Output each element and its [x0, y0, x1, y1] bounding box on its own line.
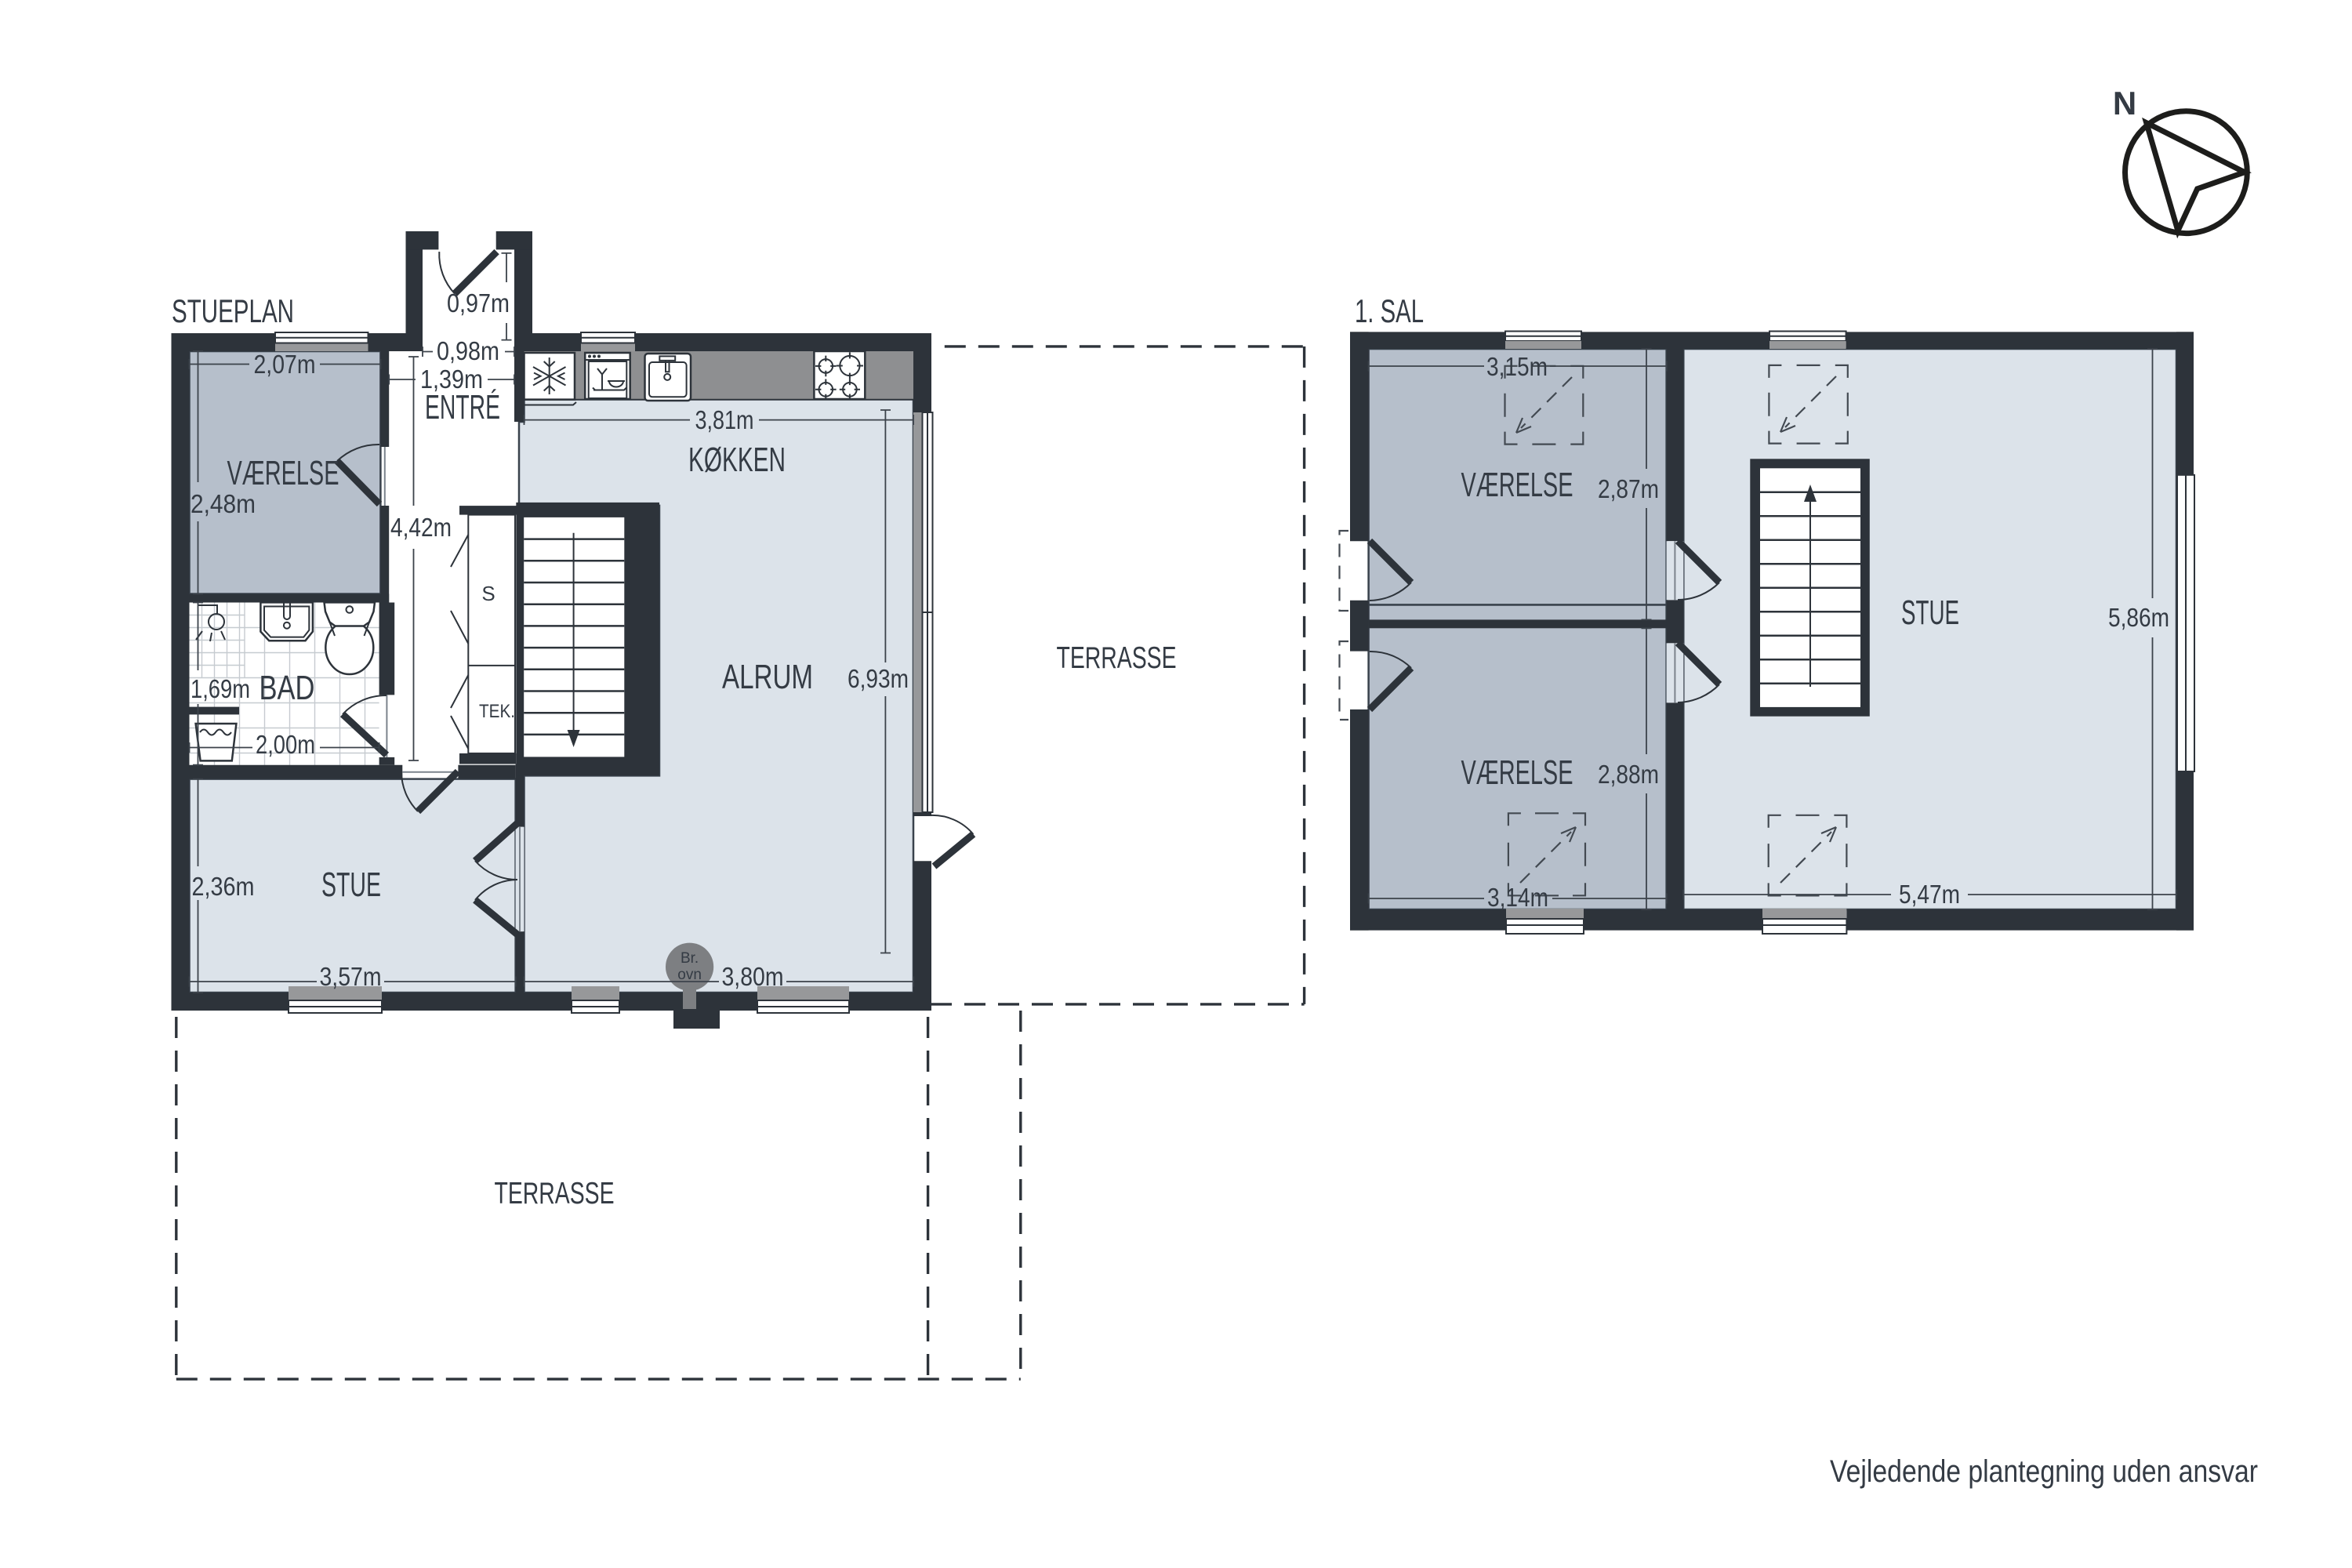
svg-text:TEK.: TEK.: [479, 701, 515, 722]
svg-text:2,88m: 2,88m: [1598, 760, 1659, 789]
svg-text:ALRUM: ALRUM: [722, 658, 813, 696]
svg-text:5,86m: 5,86m: [2108, 603, 2169, 632]
svg-text:Vejledende plantegning uden an: Vejledende plantegning uden ansvar: [1830, 1454, 2258, 1489]
svg-text:3,15m: 3,15m: [1486, 352, 1548, 381]
svg-text:3,80m: 3,80m: [722, 962, 784, 991]
svg-text:S: S: [481, 582, 495, 605]
svg-text:2,07m: 2,07m: [254, 350, 316, 379]
svg-text:VÆRELSE: VÆRELSE: [1461, 753, 1573, 792]
svg-text:ENTRÉ: ENTRÉ: [425, 388, 500, 426]
svg-text:TERRASSE: TERRASSE: [1057, 641, 1177, 675]
svg-text:BAD: BAD: [260, 669, 315, 707]
svg-text:N: N: [2113, 85, 2136, 122]
svg-text:0,97m: 0,97m: [447, 289, 510, 318]
svg-text:1,69m: 1,69m: [191, 674, 250, 703]
svg-text:VÆRELSE: VÆRELSE: [1461, 466, 1573, 504]
svg-text:STUE: STUE: [1901, 593, 1959, 632]
svg-text:KØKKEN: KØKKEN: [688, 441, 786, 479]
svg-text:6,93m: 6,93m: [848, 664, 909, 693]
svg-text:STUEPLAN: STUEPLAN: [172, 292, 294, 329]
svg-text:2,87m: 2,87m: [1598, 474, 1659, 503]
svg-text:STUE: STUE: [321, 866, 381, 904]
svg-text:0,98m: 0,98m: [437, 336, 499, 365]
svg-text:2,00m: 2,00m: [256, 730, 315, 759]
svg-text:3,14m: 3,14m: [1487, 883, 1548, 912]
svg-text:ovn: ovn: [677, 967, 702, 983]
svg-text:3,81m: 3,81m: [695, 405, 754, 434]
svg-text:4,42m: 4,42m: [390, 513, 452, 542]
svg-text:5,47m: 5,47m: [1899, 880, 1960, 909]
svg-text:VÆRELSE: VÆRELSE: [227, 454, 339, 492]
svg-text:Br.: Br.: [681, 950, 699, 967]
svg-text:1. SAL: 1. SAL: [1355, 292, 1424, 329]
svg-text:3,57m: 3,57m: [320, 962, 382, 991]
svg-text:2,48m: 2,48m: [191, 489, 256, 518]
svg-text:2,36m: 2,36m: [192, 872, 255, 901]
svg-text:TERRASSE: TERRASSE: [495, 1177, 615, 1210]
